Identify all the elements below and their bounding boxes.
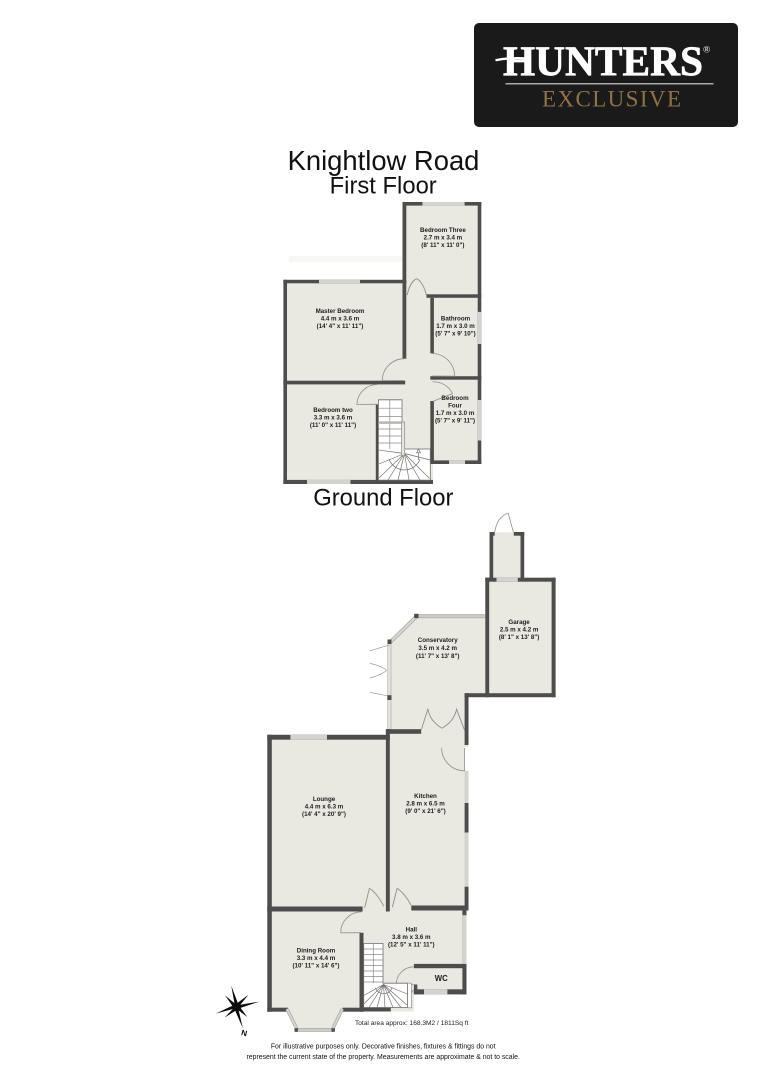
svg-text:Lounge: Lounge bbox=[313, 796, 336, 803]
svg-text:(8' 11" x 11' 0"): (8' 11" x 11' 0") bbox=[421, 242, 464, 249]
svg-text:(5' 7" x 9' 11"): (5' 7" x 9' 11") bbox=[435, 418, 475, 425]
svg-text:2.5 m x 4.2 m: 2.5 m x 4.2 m bbox=[500, 627, 539, 634]
svg-text:Total area approx: 168.3M2 / 1: Total area approx: 168.3M2 / 1811Sq ft bbox=[355, 1020, 469, 1027]
svg-text:represent the current state of: represent the current state of the prope… bbox=[247, 1054, 520, 1061]
svg-text:3.3 m x 4.4 m: 3.3 m x 4.4 m bbox=[297, 955, 336, 962]
svg-text:(11' 0" x 11' 11"): (11' 0" x 11' 11") bbox=[310, 422, 356, 429]
svg-text:Four: Four bbox=[448, 403, 462, 410]
svg-text:4.4 m x 6.3 m: 4.4 m x 6.3 m bbox=[305, 804, 344, 811]
svg-text:Hall: Hall bbox=[406, 927, 418, 934]
svg-text:Kitchen: Kitchen bbox=[414, 793, 437, 800]
svg-text:(10' 11" x 14' 6"): (10' 11" x 14' 6") bbox=[293, 963, 340, 970]
svg-text:Bedroom: Bedroom bbox=[441, 395, 469, 402]
svg-text:®: ® bbox=[703, 45, 710, 56]
svg-text:4.4 m x 3.6 m: 4.4 m x 3.6 m bbox=[321, 316, 360, 323]
svg-text:(8' 1" x 13' 8"): (8' 1" x 13' 8") bbox=[499, 634, 539, 641]
svg-text:Master Bedroom: Master Bedroom bbox=[316, 308, 365, 315]
svg-text:(11' 7" x 13' 8"): (11' 7" x 13' 8") bbox=[416, 653, 460, 660]
svg-text:Conservatory: Conservatory bbox=[418, 637, 458, 644]
svg-text:3.3 m x 3.6 m: 3.3 m x 3.6 m bbox=[314, 415, 353, 422]
svg-text:HUNTERS: HUNTERS bbox=[503, 40, 703, 86]
svg-text:(5' 7" x 9' 10"): (5' 7" x 9' 10") bbox=[435, 331, 475, 338]
svg-text:Knightlow Road: Knightlow Road bbox=[288, 145, 480, 176]
svg-text:2.7 m x 3.4 m: 2.7 m x 3.4 m bbox=[424, 235, 463, 242]
svg-text:1.7 m x 3.0 m: 1.7 m x 3.0 m bbox=[436, 410, 475, 417]
svg-text:WC: WC bbox=[435, 974, 448, 983]
svg-text:(14' 4" x 20' 9"): (14' 4" x 20' 9") bbox=[302, 811, 346, 818]
svg-text:3.5 m x 4.2 m: 3.5 m x 4.2 m bbox=[418, 645, 457, 652]
svg-text:3.8 m x 3.6 m: 3.8 m x 3.6 m bbox=[392, 934, 431, 941]
svg-text:Ground Floor: Ground Floor bbox=[313, 485, 453, 512]
svg-text:Bathroom: Bathroom bbox=[441, 316, 471, 323]
svg-text:(12' 5" x 11' 11"): (12' 5" x 11' 11") bbox=[388, 942, 435, 949]
svg-text:Dining Room: Dining Room bbox=[297, 948, 336, 955]
svg-text:2.8 m x 6.5 m: 2.8 m x 6.5 m bbox=[406, 801, 445, 808]
svg-text:First Floor: First Floor bbox=[330, 172, 437, 199]
svg-text:(9' 0" x 21' 6"): (9' 0" x 21' 6") bbox=[405, 808, 445, 815]
svg-text:EXCLUSIVE: EXCLUSIVE bbox=[542, 87, 681, 112]
svg-text:Garage: Garage bbox=[508, 619, 530, 626]
svg-text:For illustrative purposes only: For illustrative purposes only. Decorati… bbox=[271, 1043, 496, 1050]
svg-text:(14' 4" x 11' 11"): (14' 4" x 11' 11") bbox=[317, 323, 364, 330]
svg-text:Bedroom two: Bedroom two bbox=[313, 407, 353, 414]
svg-text:1.7 m x 3.0 m: 1.7 m x 3.0 m bbox=[436, 323, 475, 330]
svg-text:Bedroom Three: Bedroom Three bbox=[420, 227, 466, 234]
